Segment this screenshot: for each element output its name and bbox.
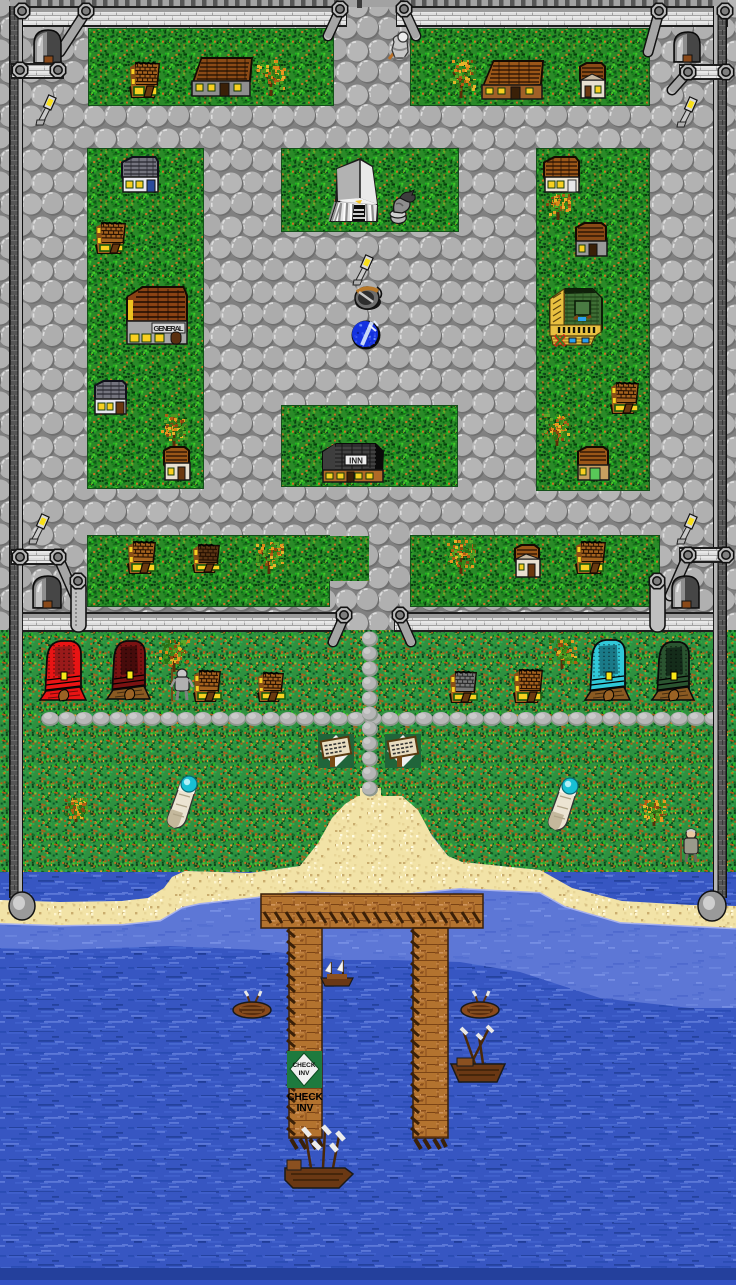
svg-text:GENERAL: GENERAL bbox=[154, 324, 184, 333]
svg-text:INN: INN bbox=[349, 457, 363, 466]
svg-text:INV: INV bbox=[297, 1103, 314, 1114]
svg-text:CHECK: CHECK bbox=[292, 1062, 315, 1069]
svg-text:CHECK: CHECK bbox=[287, 1092, 323, 1103]
svg-text:INV: INV bbox=[299, 1070, 311, 1077]
